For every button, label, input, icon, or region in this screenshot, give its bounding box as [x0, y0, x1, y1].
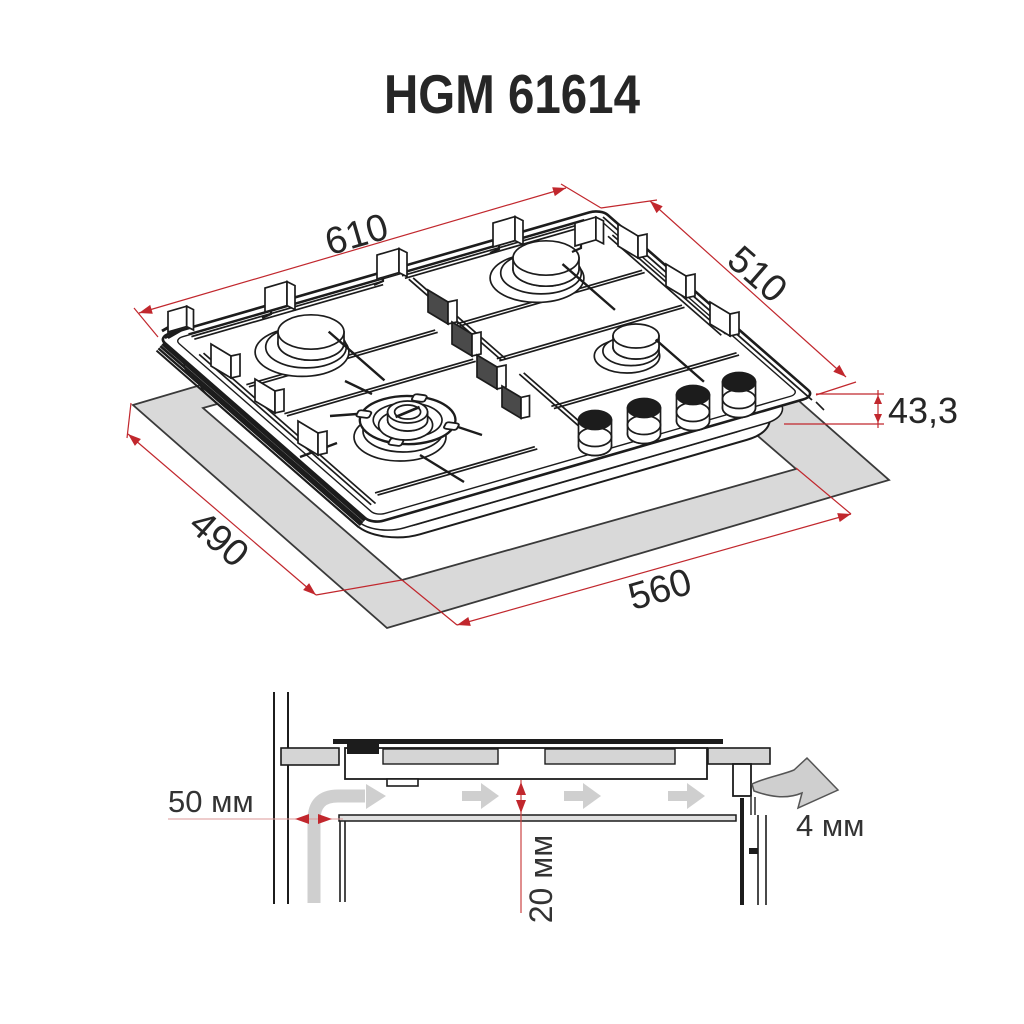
svg-text:510: 510: [719, 238, 794, 311]
svg-text:50 мм: 50 мм: [168, 784, 254, 819]
svg-text:20 мм: 20 мм: [523, 835, 559, 923]
svg-text:560: 560: [624, 561, 697, 619]
svg-text:490: 490: [181, 503, 256, 576]
svg-text:43,3: 43,3: [888, 390, 958, 431]
svg-text:HGM 61614: HGM 61614: [384, 63, 640, 125]
svg-text:4 мм: 4 мм: [796, 808, 864, 843]
